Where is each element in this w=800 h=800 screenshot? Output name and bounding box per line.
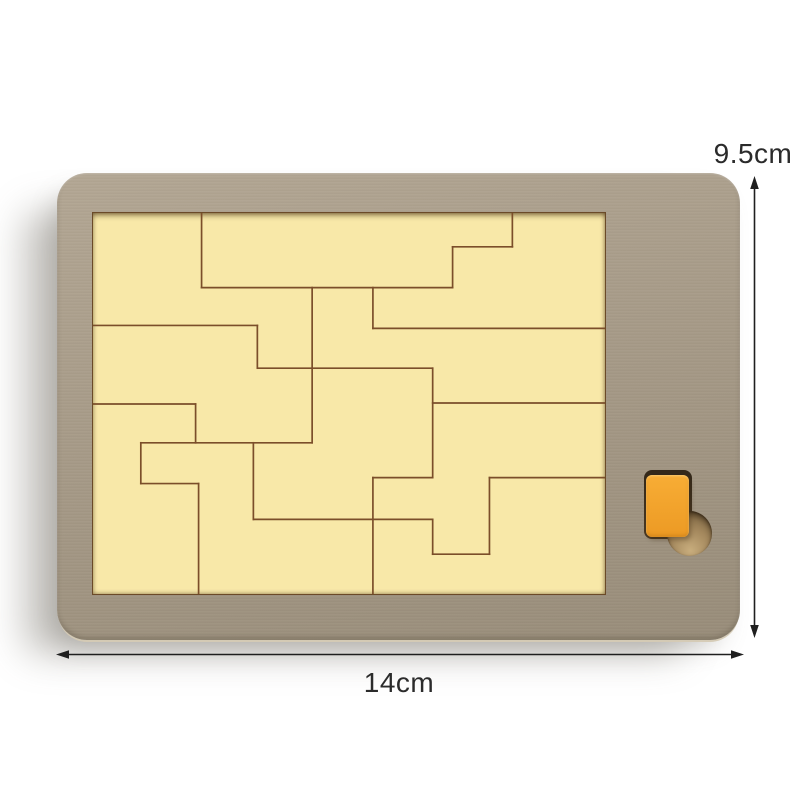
product-photo-canvas: 9.5cm 14cm (0, 0, 800, 800)
puzzle-board-frame (57, 173, 740, 640)
puzzle-piece-outlines (93, 213, 605, 594)
puzzle-tray (92, 212, 606, 595)
arrowhead-down-icon (750, 625, 759, 638)
width-dimension-arrow (56, 647, 744, 662)
height-dimension-arrow (747, 176, 762, 638)
width-dimension-label: 14cm (348, 668, 450, 699)
height-dimension-label: 9.5cm (712, 139, 794, 170)
arrowhead-right-icon (731, 650, 744, 659)
orange-puzzle-piece (646, 475, 689, 537)
